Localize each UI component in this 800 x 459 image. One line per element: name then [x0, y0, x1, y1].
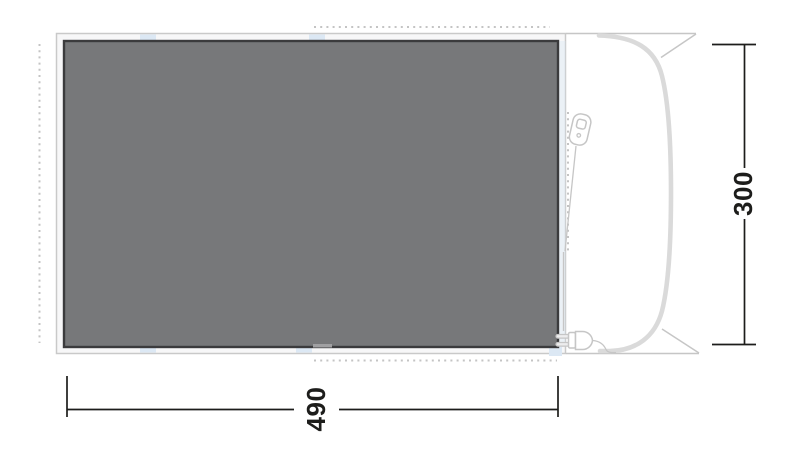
carpet-area [64, 41, 558, 347]
footprint-drawing: 490 300 [0, 0, 800, 459]
tent-fabric-curve [599, 36, 671, 352]
carpet-edge-notch [313, 344, 332, 348]
door-zipper [564, 112, 593, 331]
zip-flap-strip [559, 41, 566, 347]
width-dimension: 490 [67, 376, 558, 431]
tent-end-outline [566, 34, 699, 354]
zipper-pull-icon [568, 112, 593, 146]
pegging-tab [549, 347, 562, 356]
zipper-pull-body [568, 112, 593, 146]
height-dimension: 300 [712, 45, 758, 345]
plug-collar [569, 333, 576, 349]
plug-body [576, 331, 593, 349]
height-dimension-label: 300 [728, 171, 758, 216]
zipper-cord [565, 146, 576, 251]
zipper-pull-hole [576, 119, 587, 130]
width-dimension-label: 490 [301, 387, 331, 432]
corner-guy-line-top [661, 34, 696, 58]
corner-guy-line-bottom [662, 329, 699, 353]
tent-footprint-diagram: 490 300 [0, 0, 800, 459]
